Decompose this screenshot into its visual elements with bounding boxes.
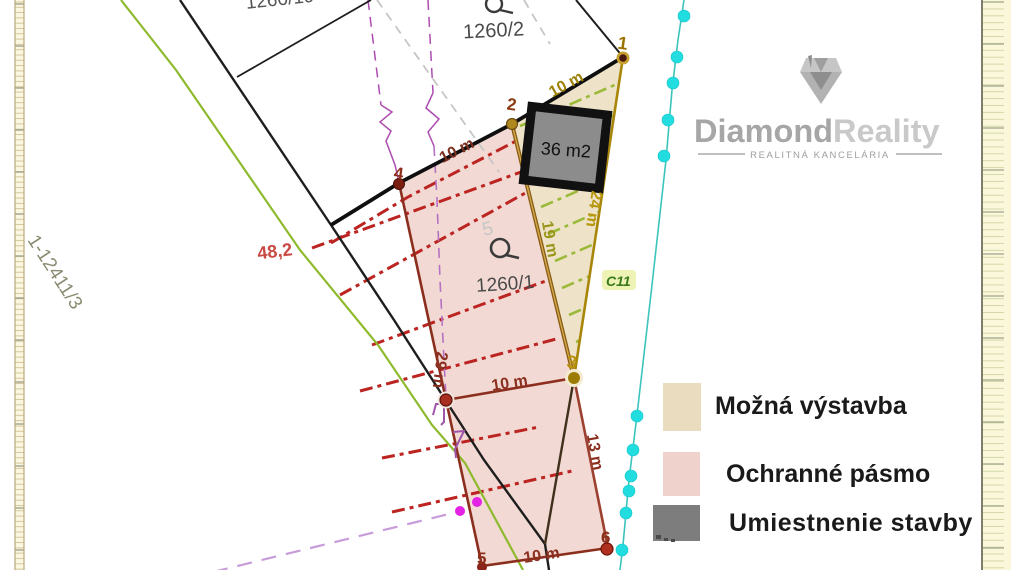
svg-text:6: 6 bbox=[601, 528, 610, 547]
svg-text:1260/2: 1260/2 bbox=[463, 18, 525, 43]
svg-text:Možná výstavba: Možná výstavba bbox=[715, 392, 908, 420]
svg-text:DiamondReality: DiamondReality bbox=[694, 113, 940, 149]
svg-text:36 m2: 36 m2 bbox=[540, 138, 591, 161]
svg-text:C11: C11 bbox=[606, 273, 631, 289]
svg-text:1260/1: 1260/1 bbox=[475, 272, 534, 297]
svg-text:Ochranné pásmo: Ochranné pásmo bbox=[726, 460, 930, 488]
svg-text:REALITNÁ KANCELÁRIA: REALITNÁ KANCELÁRIA bbox=[750, 150, 890, 161]
svg-text:48,2: 48,2 bbox=[256, 239, 293, 263]
svg-text:Umiestnenie stavby: Umiestnenie stavby bbox=[729, 509, 973, 537]
svg-text:5: 5 bbox=[477, 549, 486, 568]
